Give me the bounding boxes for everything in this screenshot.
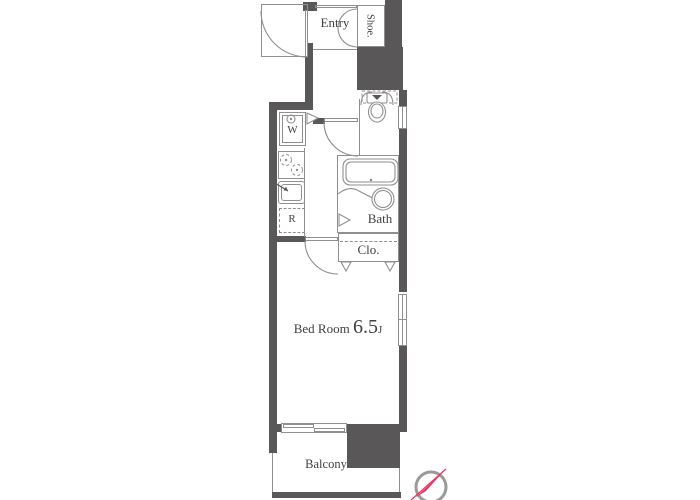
bathtub-icon [343, 159, 398, 185]
closet-label: Clo. [338, 243, 399, 257]
washer-door-arrow-icon [307, 113, 318, 124]
bedroom-door-swing-icon [305, 241, 338, 274]
bedroom-size: 6.5 [353, 316, 378, 338]
bath-door-arrow-icon [339, 214, 350, 226]
fridge-label: R [279, 213, 305, 225]
wash-basin-icon [372, 188, 394, 210]
shoe-door-lower-swing-icon [338, 28, 357, 47]
floor-plan: Entry Shoe. W R Bath Clo. Bed Room 6.5J … [0, 0, 700, 500]
stove-burners-icon [281, 155, 303, 176]
washer-faucet-icon [287, 115, 295, 123]
hanger-bracket-icons [341, 262, 395, 271]
entry-label: Entry [313, 16, 357, 30]
bath-curtain-line-icon [338, 189, 373, 198]
balcony-label: Balcony [291, 458, 361, 472]
bath-label: Bath [360, 212, 400, 226]
bedroom-name: Bed Room [294, 321, 350, 336]
shoe-label: Shoe. [364, 7, 376, 45]
corridor-door-swing-icon [324, 122, 358, 156]
sink-faucet-icon [275, 183, 288, 191]
toilet-icon [361, 91, 397, 122]
bedroom-size-unit: J [378, 324, 382, 336]
entry-door-swing-icon [261, 11, 307, 57]
washer-label: W [279, 124, 306, 136]
compass-icon [411, 469, 446, 500]
bedroom-label: Bed Room 6.5J [276, 316, 400, 338]
